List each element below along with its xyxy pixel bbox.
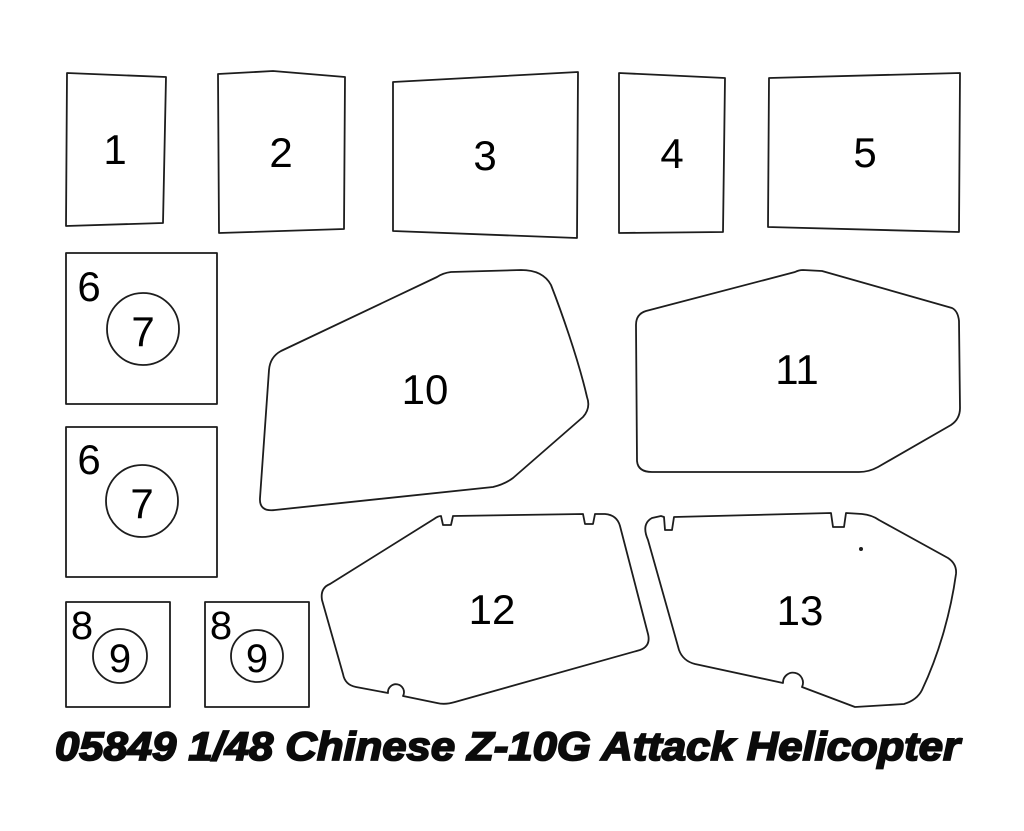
part-10: 10: [260, 270, 588, 510]
part-9-left-label: 9: [109, 637, 131, 681]
part-9-right-label: 9: [246, 637, 268, 681]
part-8-right: 8 9: [205, 602, 309, 707]
part-11: 11: [636, 270, 960, 472]
part-1: 1: [66, 73, 166, 226]
part-6-top: 6 7: [66, 253, 217, 404]
part-4: 4: [619, 73, 725, 233]
part-6-bottom: 6 7: [66, 427, 217, 577]
part-10-label: 10: [402, 366, 449, 413]
parts-diagram-page: 1 2 3 4 5 6 7 6 7: [0, 0, 1024, 831]
part-5: 5: [768, 73, 960, 232]
part-6-top-label: 6: [77, 263, 100, 310]
part-12: 12: [322, 514, 649, 704]
part-13-label: 13: [777, 587, 824, 634]
part-3: 3: [393, 72, 578, 238]
part-4-label: 4: [660, 130, 683, 177]
part-13: 13: [645, 513, 956, 707]
kit-title: 05849 1/48 Chinese Z-10G Attack Helicopt…: [55, 725, 963, 769]
part-2: 2: [218, 71, 345, 233]
part-8-left: 8 9: [66, 602, 170, 707]
print-speck: [859, 547, 863, 551]
part-3-label: 3: [473, 132, 496, 179]
part-7-top-label: 7: [131, 308, 154, 355]
part-8-left-label: 8: [71, 604, 93, 648]
part-6-bottom-label: 6: [77, 436, 100, 483]
part-7-bottom-label: 7: [130, 480, 153, 527]
part-2-label: 2: [269, 129, 292, 176]
parts-diagram: 1 2 3 4 5 6 7 6 7: [0, 0, 1024, 831]
part-11-label: 11: [775, 346, 819, 393]
part-12-label: 12: [469, 586, 516, 633]
part-1-label: 1: [103, 126, 126, 173]
part-5-label: 5: [853, 129, 876, 176]
part-8-right-label: 8: [210, 604, 232, 648]
